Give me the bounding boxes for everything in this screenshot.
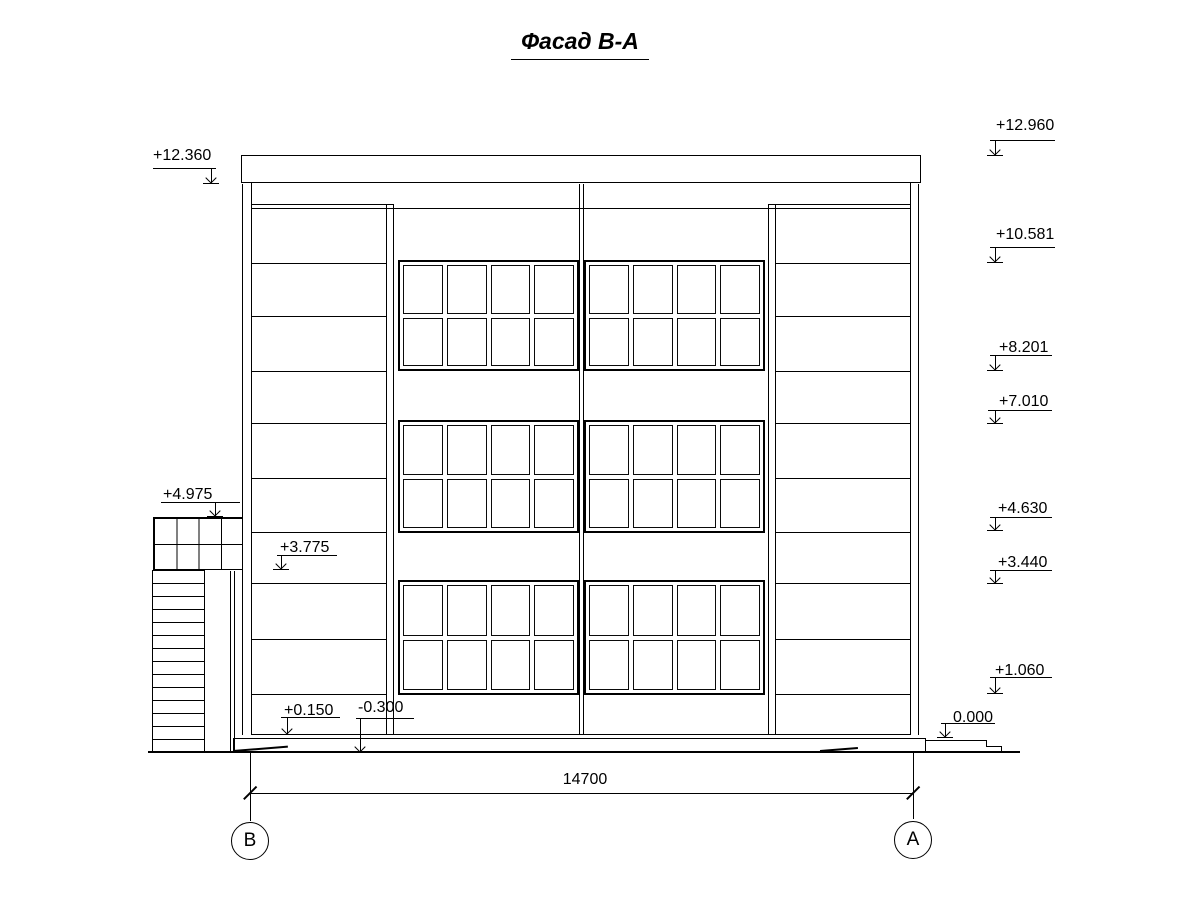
window-pane: [403, 318, 443, 367]
window-pane: [589, 479, 629, 529]
level-tick: [987, 530, 1003, 531]
window-pane: [633, 425, 673, 475]
window-pane: [633, 479, 673, 529]
leader-line: [277, 555, 337, 556]
leader-line: [356, 718, 414, 719]
window-pane: [447, 640, 487, 691]
window-pane: [491, 585, 531, 636]
dimension-value: 14700: [540, 771, 630, 789]
window-pane: [589, 265, 629, 314]
ground-line: [148, 751, 1020, 753]
tower-band-line: [252, 371, 386, 372]
window-pane: [403, 265, 443, 314]
level-tick: [279, 734, 295, 735]
level-tick: [203, 183, 219, 184]
window-band-floor2-right: [584, 420, 765, 533]
level-tick: [352, 752, 368, 753]
window-pane: [589, 585, 629, 636]
axis-line-right: [913, 753, 914, 819]
elevation-label: +3.440: [998, 554, 1047, 572]
window-pane: [403, 479, 443, 529]
tower-band-line: [776, 423, 911, 424]
tower-band-line: [776, 583, 911, 584]
dimension-line: [250, 793, 913, 794]
axis-label-right: А: [907, 829, 920, 851]
tower-band-line: [776, 478, 911, 479]
down-arrow-icon: [989, 359, 1000, 370]
drawing-title-text: Фасад В-А: [511, 28, 649, 60]
window-pane: [677, 425, 717, 475]
window-pane: [677, 318, 717, 367]
tower-band-line: [776, 316, 911, 317]
elevation-label: -0.300: [358, 699, 403, 717]
tower-band-line: [252, 583, 386, 584]
down-arrow-icon: [989, 572, 1000, 583]
leader-line: [941, 723, 995, 724]
tower-band-line: [252, 263, 386, 264]
window-pane: [447, 265, 487, 314]
wall-corner-line-right: [918, 184, 919, 735]
down-arrow-icon: [939, 726, 950, 737]
window-pane: [633, 585, 673, 636]
tower-band-line: [776, 639, 911, 640]
tower-band-line: [776, 694, 911, 695]
down-arrow-icon: [205, 172, 216, 183]
down-arrow-icon: [989, 412, 1000, 423]
window-pane: [677, 265, 717, 314]
pilaster-strip-left: [386, 204, 394, 735]
tower-band-line: [776, 371, 911, 372]
window-pane: [491, 425, 531, 475]
level-tick: [987, 693, 1003, 694]
tower-band-line: [776, 263, 911, 264]
window-band-floor1-left: [398, 580, 579, 695]
level-tick: [937, 737, 953, 738]
elevation-label: +8.201: [999, 339, 1048, 357]
level-tick: [273, 569, 289, 570]
axis-bubble-left: В: [231, 822, 269, 860]
window-pane: [534, 585, 574, 636]
window-band-floor3-right: [584, 260, 765, 371]
window-pane: [720, 479, 760, 529]
leader-line: [990, 247, 1055, 248]
window-pane: [720, 425, 760, 475]
window-pane: [633, 640, 673, 691]
axis-bubble-right: А: [894, 821, 932, 859]
wall-corner-line-left: [242, 184, 243, 735]
drawing-title: Фасад В-А: [430, 28, 730, 60]
down-arrow-icon: [989, 519, 1000, 530]
level-tick: [987, 262, 1003, 263]
window-pane: [534, 479, 574, 529]
window-pane: [447, 318, 487, 367]
leader-line: [990, 570, 1052, 571]
window-pane: [677, 640, 717, 691]
window-pane: [633, 265, 673, 314]
window-pane: [720, 318, 760, 367]
tower-cap-left: [252, 204, 394, 205]
tower-band-line: [252, 316, 386, 317]
window-pane: [403, 640, 443, 691]
leader-line: [153, 168, 216, 169]
leader-line: [988, 410, 1052, 411]
down-arrow-icon: [989, 144, 1000, 155]
door-jamb: [234, 571, 235, 751]
level-tick: [987, 423, 1003, 424]
window-band-floor2-left: [398, 420, 579, 533]
window-pane: [677, 585, 717, 636]
level-tick: [987, 370, 1003, 371]
window-pane: [677, 479, 717, 529]
window-pane: [447, 425, 487, 475]
window-pane: [491, 479, 531, 529]
elevation-label: +12.360: [153, 147, 211, 165]
window-pane: [720, 265, 760, 314]
down-arrow-icon: [209, 505, 220, 516]
tower-band-line: [252, 423, 386, 424]
window-pane: [589, 640, 629, 691]
window-pane: [403, 585, 443, 636]
elevation-label: +3.775: [280, 539, 329, 557]
down-arrow-icon: [989, 682, 1000, 693]
window-pane: [491, 640, 531, 691]
window-pane: [491, 318, 531, 367]
step-line: [926, 740, 987, 741]
elevation-label: +4.975: [163, 486, 212, 504]
elevation-label: +4.630: [998, 500, 1047, 518]
stair-steps: [152, 570, 205, 751]
elevation-label: +12.960: [996, 117, 1054, 135]
window-pane: [534, 425, 574, 475]
tower-band-line: [252, 639, 386, 640]
axis-label-left: В: [244, 830, 257, 852]
leader-line: [281, 717, 340, 718]
level-tick: [207, 516, 223, 517]
window-pane: [491, 265, 531, 314]
axis-line-left: [250, 753, 251, 821]
leader-line: [990, 355, 1052, 356]
window-pane: [589, 318, 629, 367]
step-line: [986, 746, 1002, 747]
window-pane: [447, 479, 487, 529]
tower-band-line: [776, 532, 911, 533]
tower-band-line: [252, 532, 386, 533]
window-pane: [720, 585, 760, 636]
parapet-band: [241, 155, 921, 183]
window-pane: [534, 640, 574, 691]
leader-line: [161, 502, 240, 503]
window-band-floor3-left: [398, 260, 579, 371]
window-pane: [534, 318, 574, 367]
tower-band-line: [252, 694, 386, 695]
leader-line: [990, 517, 1052, 518]
level-tick: [987, 583, 1003, 584]
tower-band-line: [252, 478, 386, 479]
stair-parapet-tiles: [153, 517, 243, 570]
window-band-floor1-right: [584, 580, 765, 695]
facade-drawing-sheet: Фасад В-А: [0, 0, 1200, 900]
elevation-label: +7.010: [999, 393, 1048, 411]
door-jamb: [230, 571, 231, 751]
window-pane: [720, 640, 760, 691]
pilaster-strip-right: [768, 204, 776, 735]
window-pane: [403, 425, 443, 475]
level-tick: [987, 155, 1003, 156]
leader-line: [990, 677, 1052, 678]
leader-line: [990, 140, 1055, 141]
window-pane: [447, 585, 487, 636]
tower-cap-right: [768, 204, 911, 205]
elevation-label: +10.581: [996, 226, 1054, 244]
window-pane: [633, 318, 673, 367]
down-arrow-icon: [989, 251, 1000, 262]
window-pane: [589, 425, 629, 475]
window-pane: [534, 265, 574, 314]
